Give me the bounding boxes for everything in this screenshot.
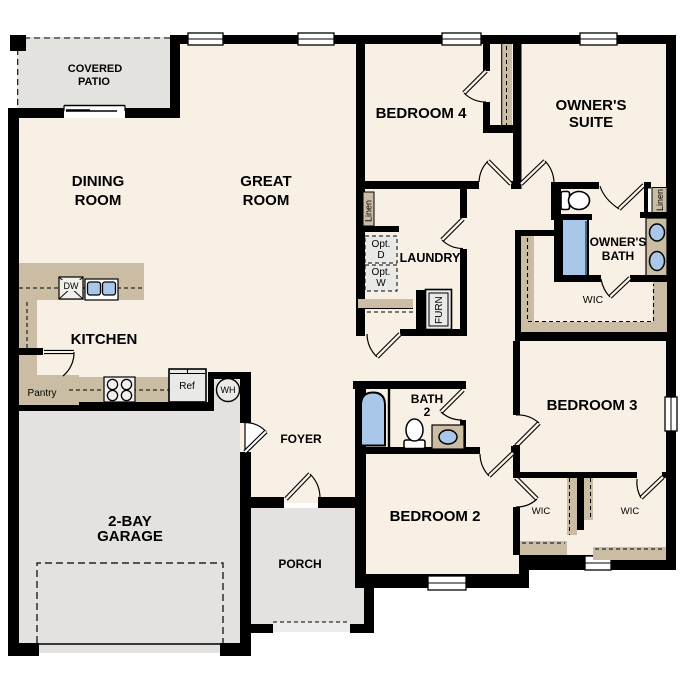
svg-text:DW: DW bbox=[64, 281, 79, 291]
svg-text:PORCH: PORCH bbox=[278, 557, 321, 571]
svg-text:Opt.: Opt. bbox=[372, 239, 391, 250]
svg-text:Pantry: Pantry bbox=[28, 388, 57, 399]
svg-text:WIC: WIC bbox=[532, 506, 551, 517]
svg-text:BEDROOM 2: BEDROOM 2 bbox=[390, 508, 481, 525]
svg-text:ROOM: ROOM bbox=[243, 192, 290, 209]
svg-text:KITCHEN: KITCHEN bbox=[71, 331, 138, 348]
svg-text:BATH: BATH bbox=[411, 392, 443, 406]
svg-text:ROOM: ROOM bbox=[75, 192, 122, 209]
svg-text:GREAT: GREAT bbox=[240, 173, 291, 190]
svg-text:BEDROOM 4: BEDROOM 4 bbox=[376, 105, 468, 122]
svg-text:D: D bbox=[377, 250, 384, 261]
svg-text:COVERED: COVERED bbox=[68, 63, 122, 75]
svg-text:LAUNDRY: LAUNDRY bbox=[400, 251, 461, 265]
svg-text:BATH: BATH bbox=[602, 249, 634, 263]
svg-text:Linen: Linen bbox=[364, 200, 374, 222]
svg-text:OWNER'S: OWNER'S bbox=[555, 97, 626, 114]
svg-text:WIC: WIC bbox=[583, 294, 604, 306]
svg-text:2: 2 bbox=[424, 405, 431, 419]
svg-text:BEDROOM 3: BEDROOM 3 bbox=[547, 397, 638, 414]
svg-text:WH: WH bbox=[221, 385, 236, 395]
svg-text:FOYER: FOYER bbox=[280, 432, 322, 446]
svg-text:PATIO: PATIO bbox=[78, 76, 110, 88]
svg-text:OWNER'S: OWNER'S bbox=[590, 235, 647, 249]
svg-text:W: W bbox=[376, 278, 386, 289]
svg-text:Ref: Ref bbox=[179, 381, 195, 392]
svg-text:DINING: DINING bbox=[72, 173, 125, 190]
svg-text:GARAGE: GARAGE bbox=[97, 528, 163, 545]
svg-text:FURN: FURN bbox=[434, 296, 445, 324]
svg-text:SUITE: SUITE bbox=[569, 114, 613, 131]
svg-text:Linen: Linen bbox=[655, 189, 665, 211]
svg-text:WIC: WIC bbox=[621, 506, 640, 517]
svg-text:Opt.: Opt. bbox=[372, 267, 391, 278]
